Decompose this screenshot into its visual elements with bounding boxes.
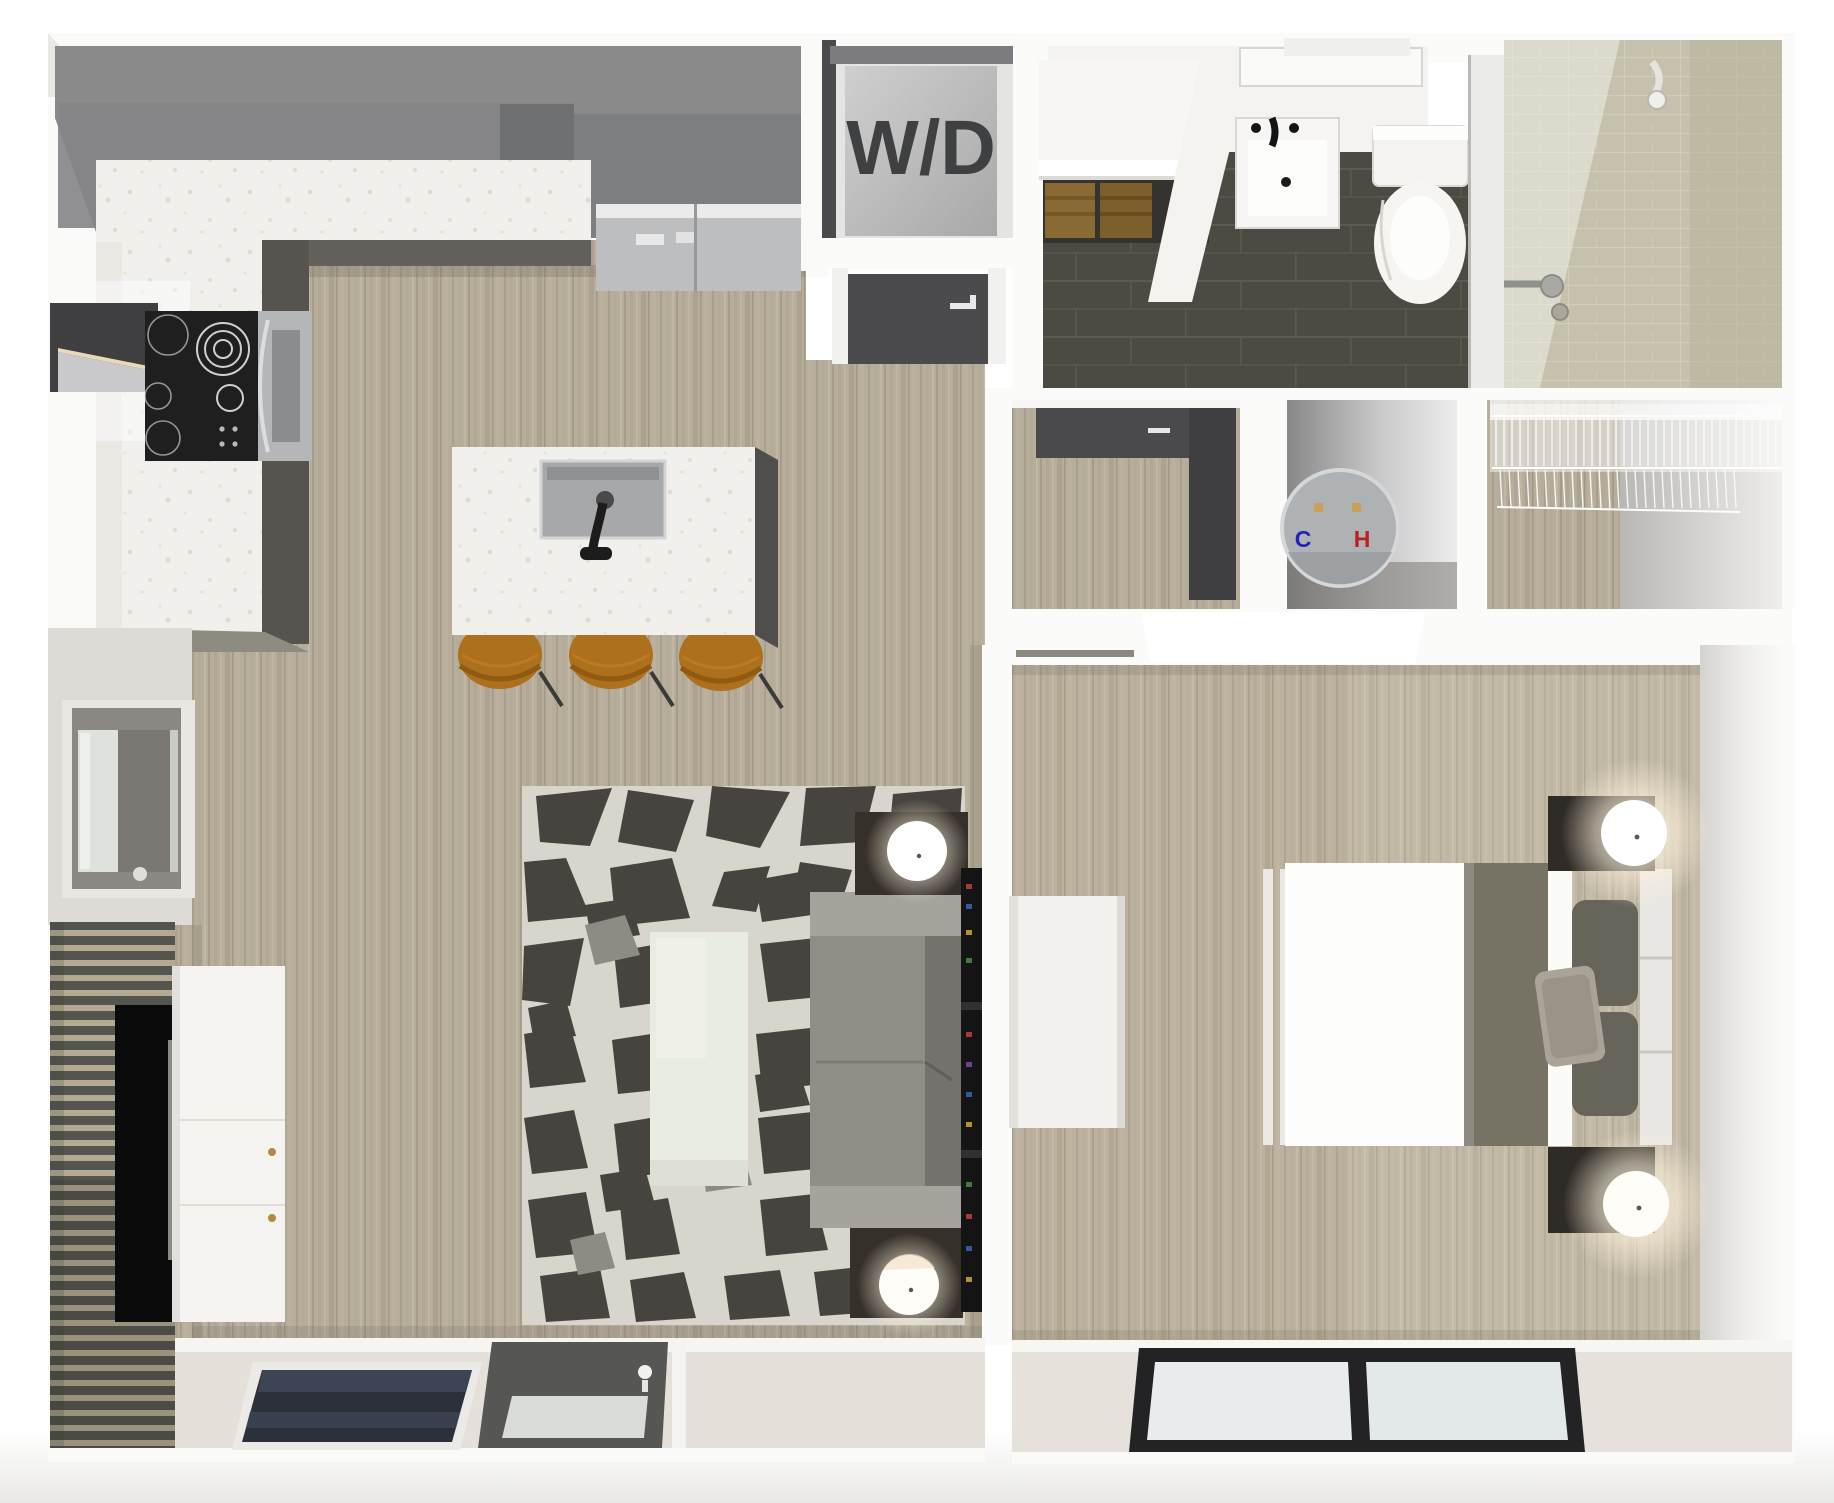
svg-text:C: C bbox=[1295, 526, 1312, 552]
svg-text:H: H bbox=[1354, 526, 1371, 552]
svg-text:W/D: W/D bbox=[846, 105, 996, 191]
